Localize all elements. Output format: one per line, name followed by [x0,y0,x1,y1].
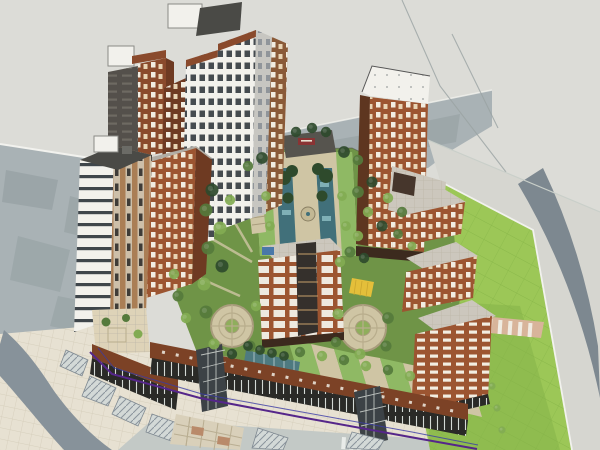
blue-skylight [262,247,274,255]
central-mid-rise [258,238,344,348]
architectural-render [0,0,600,450]
scene-svg [0,0,600,450]
penthouse-box [168,4,202,28]
corner-courtyard [92,308,150,354]
west-white-tower [74,136,152,332]
circular-plaza-east [340,305,386,351]
dark-core [296,242,318,336]
roof-vent [122,146,132,154]
penthouse-box [94,136,118,152]
penthouse-box [108,46,134,66]
